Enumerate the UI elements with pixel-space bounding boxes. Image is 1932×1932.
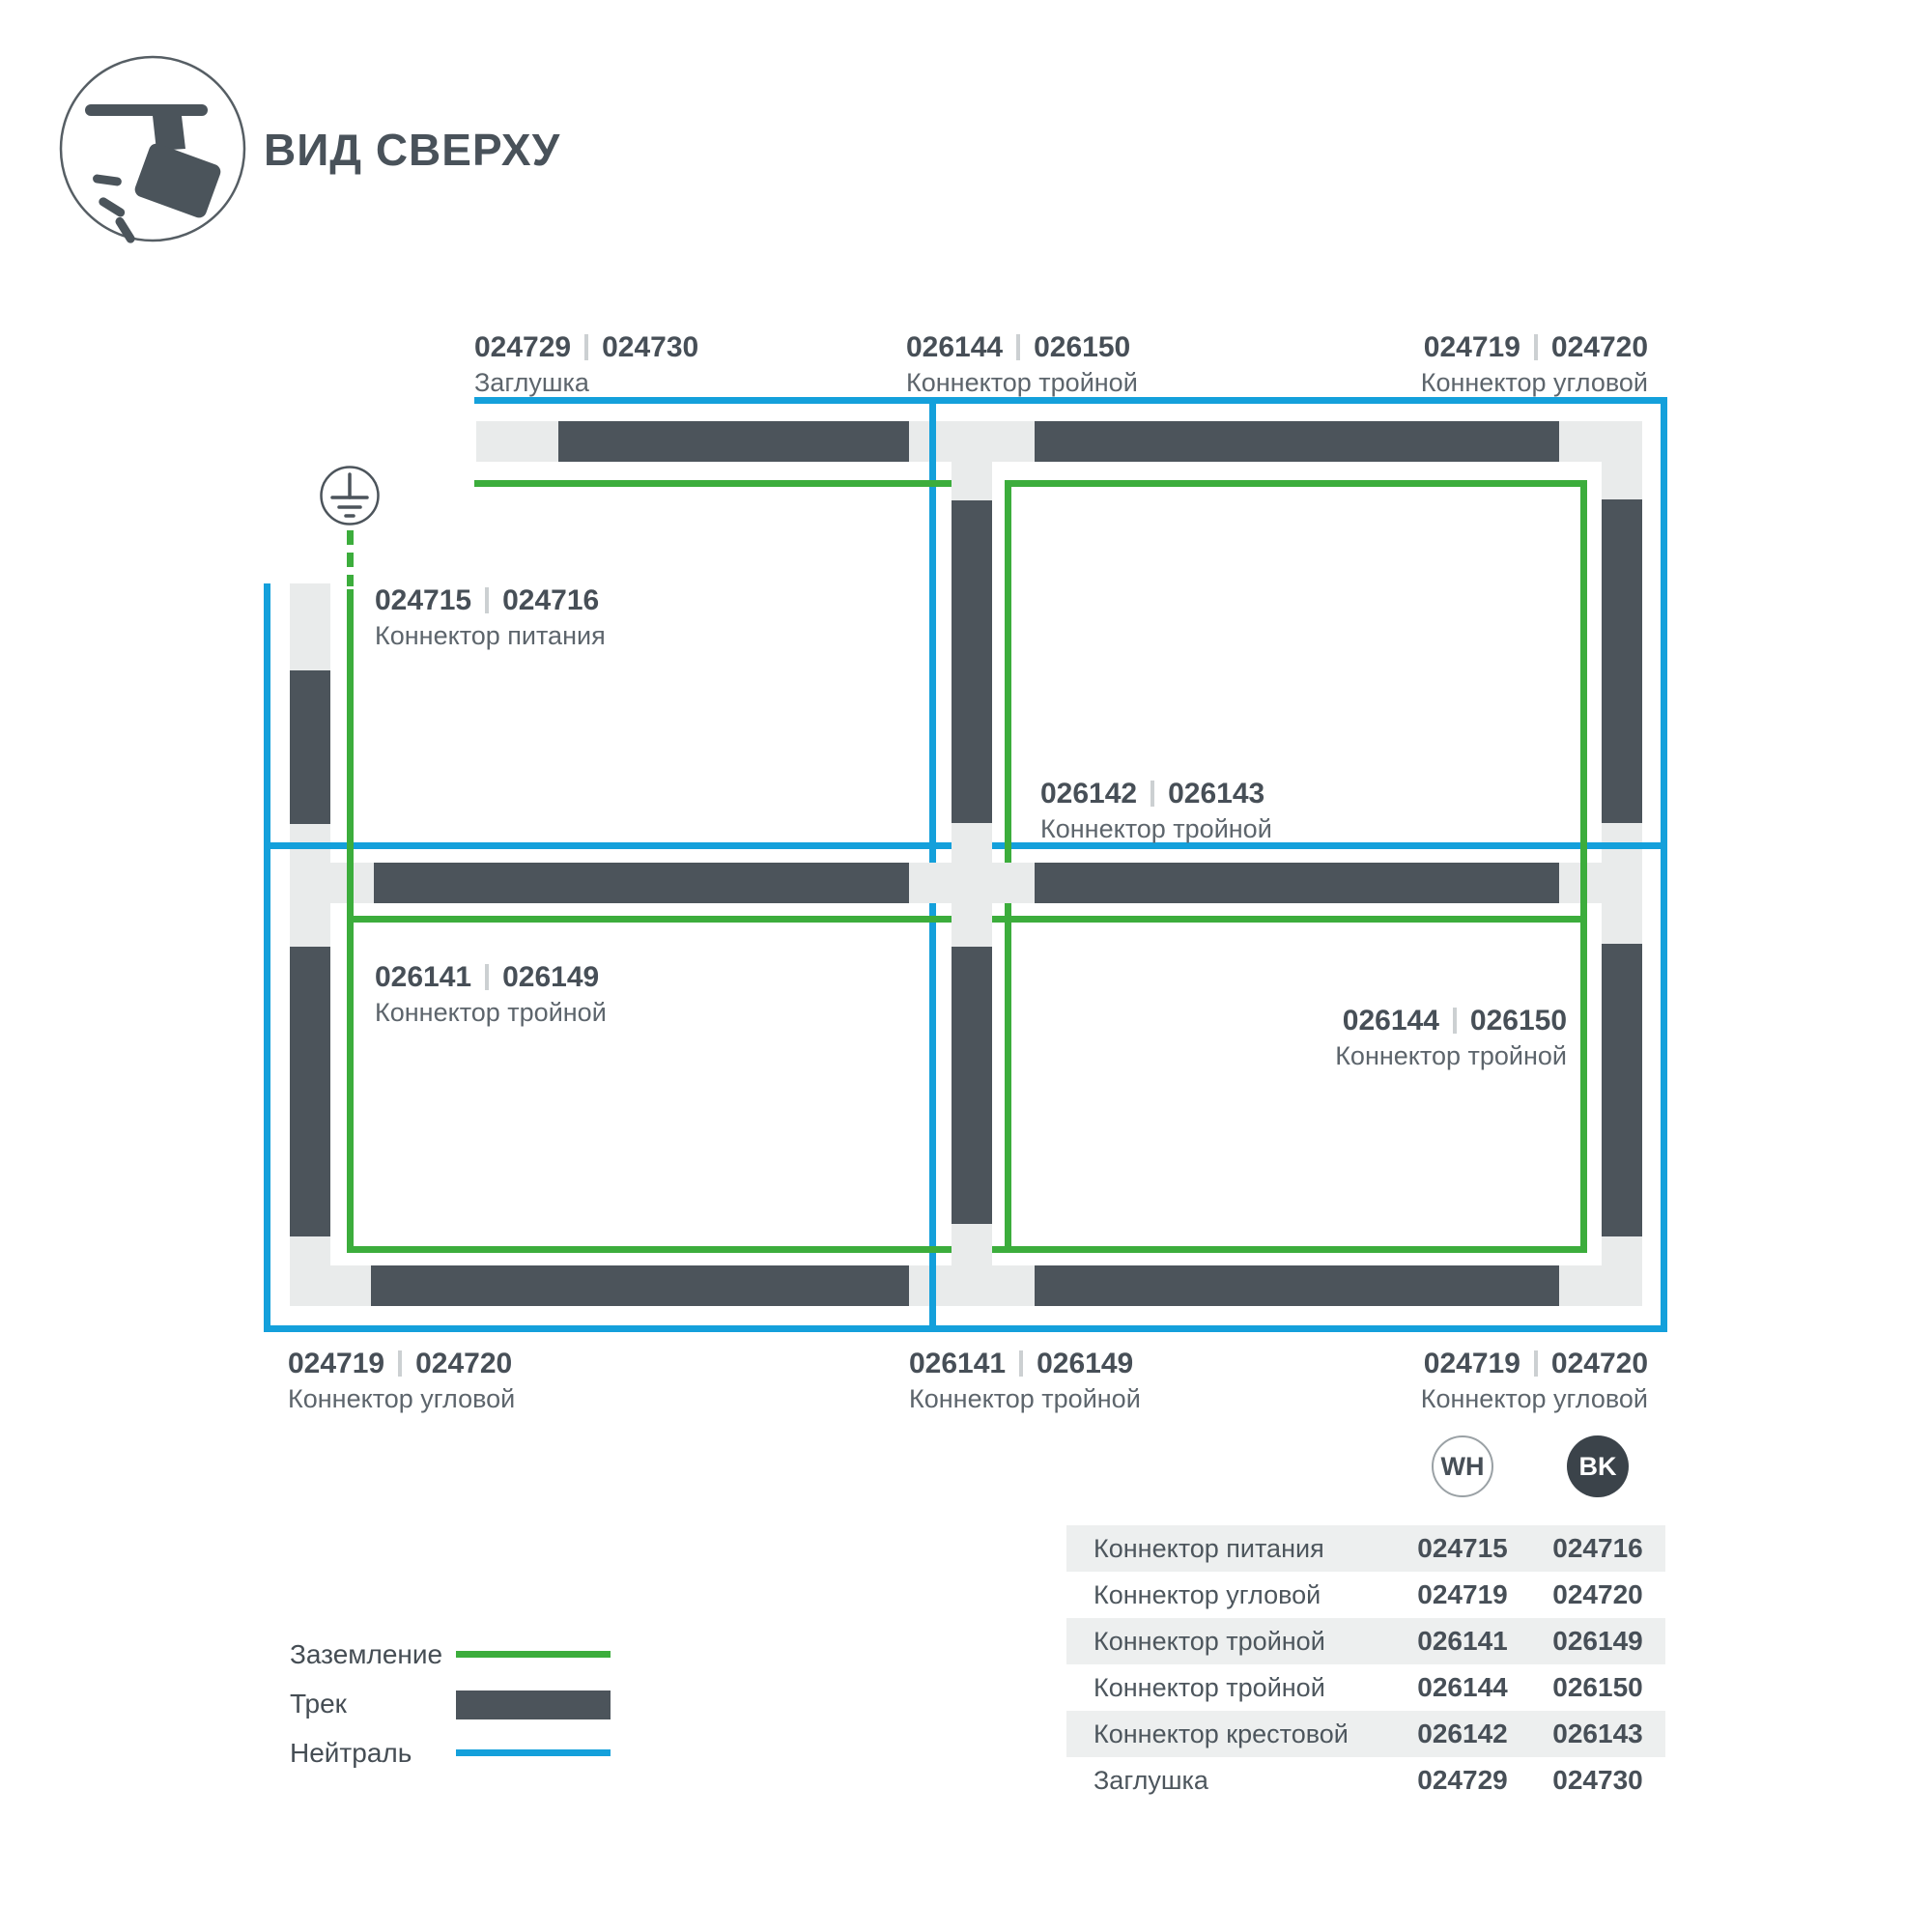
part-code-wh: 024715 <box>375 584 471 616</box>
part-code-bk: 024730 <box>602 331 698 363</box>
part-name-cell: Коннектор крестовой <box>1066 1719 1395 1749</box>
track-segment <box>290 947 330 1236</box>
bk-code-cell: 026143 <box>1530 1719 1665 1749</box>
ground-dashed-line <box>347 530 354 586</box>
table-row: Коннектор питания 024715 024716 <box>1066 1525 1665 1572</box>
part-name: Заглушка <box>474 368 698 397</box>
bk-code-cell: 024720 <box>1530 1579 1665 1610</box>
part-code-bk: 026150 <box>1034 331 1130 363</box>
part-name: Коннектор питания <box>375 621 606 650</box>
track-segment <box>371 1265 909 1306</box>
part-name: Коннектор угловой <box>1421 368 1648 397</box>
part-code-bk: 026149 <box>502 961 599 993</box>
part-name-cell: Коннектор угловой <box>1066 1580 1395 1610</box>
part-name-cell: Коннектор питания <box>1066 1534 1395 1564</box>
legend-swatch-neutral <box>456 1749 611 1756</box>
part-name: Коннектор тройной <box>909 1384 1141 1413</box>
bk-code-cell: 024730 <box>1530 1765 1665 1796</box>
bk-code-cell: 026150 <box>1530 1672 1665 1703</box>
separator <box>1534 1350 1538 1377</box>
part-code-bk: 026150 <box>1470 1005 1567 1037</box>
part-code-wh: 026141 <box>909 1348 1006 1379</box>
track-segment <box>1035 863 1559 903</box>
wh-code-cell: 024715 <box>1395 1533 1530 1564</box>
cross-connector-piece <box>909 863 1035 903</box>
part-label-center-cross: 026142026143 Коннектор тройной <box>1040 779 1272 843</box>
part-label-mid-right: 026144026150 Коннектор тройной <box>1335 1006 1567 1070</box>
part-label-bottom-right: 024719024720 Коннектор угловой <box>1421 1349 1648 1413</box>
wh-code-cell: 026142 <box>1395 1719 1530 1749</box>
separator <box>398 1350 402 1377</box>
part-label-bottom-center: 026141026149 Коннектор тройной <box>909 1349 1141 1413</box>
ground-line-top-left <box>474 480 952 487</box>
bk-code-cell: 026149 <box>1530 1626 1665 1657</box>
table-row: Коннектор тройной 026144 026150 <box>1066 1664 1665 1711</box>
part-name: Коннектор угловой <box>1421 1384 1648 1413</box>
separator <box>1016 334 1020 360</box>
part-code-bk: 024720 <box>415 1348 512 1379</box>
separator <box>1453 1008 1457 1034</box>
part-label-top-center: 026144026150 Коннектор тройной <box>906 332 1138 397</box>
neutral-line-right <box>1661 397 1667 1332</box>
ground-line-top-right <box>1005 480 1587 487</box>
legend-label-neutral: Нейтраль <box>290 1738 412 1769</box>
track-segment <box>290 670 330 824</box>
tee-connector-piece <box>952 1224 992 1265</box>
part-name: Коннектор тройной <box>375 998 607 1027</box>
part-code-bk: 024720 <box>1551 1348 1648 1379</box>
ground-symbol-icon <box>319 465 381 526</box>
part-name-cell: Заглушка <box>1066 1766 1395 1796</box>
track-segment <box>374 863 909 903</box>
separator <box>584 334 588 360</box>
part-name-cell: Коннектор тройной <box>1066 1673 1395 1703</box>
part-code-bk: 026149 <box>1037 1348 1133 1379</box>
page: ВИД СВЕРХУ <box>0 0 1932 1932</box>
neutral-line-bottom <box>264 1325 1667 1332</box>
separator <box>485 964 489 990</box>
wh-code-cell: 026141 <box>1395 1626 1530 1657</box>
part-code-wh: 026142 <box>1040 778 1137 810</box>
wh-code-cell: 026144 <box>1395 1672 1530 1703</box>
part-code-wh: 026141 <box>375 961 471 993</box>
part-code-bk: 026143 <box>1168 778 1264 810</box>
wh-code-cell: 024719 <box>1395 1579 1530 1610</box>
ground-line-left-vert <box>347 589 354 1253</box>
table-row: Коннектор тройной 026141 026149 <box>1066 1618 1665 1664</box>
track-segment <box>1602 499 1642 823</box>
track-segment <box>952 944 992 1224</box>
ground-line-right-vert <box>1580 480 1587 1253</box>
legend-swatch-track <box>456 1690 611 1719</box>
table-row: Заглушка 024729 024730 <box>1066 1757 1665 1804</box>
part-code-bk: 024720 <box>1551 331 1648 363</box>
track-segment <box>952 500 992 823</box>
separator <box>1019 1350 1023 1377</box>
part-label-top-left: 024729024730 Заглушка <box>474 332 698 397</box>
track-segment <box>1602 944 1642 1236</box>
track-segment <box>1035 421 1559 462</box>
part-code-wh: 024729 <box>474 331 571 363</box>
table-row: Коннектор крестовой 026142 026143 <box>1066 1711 1665 1757</box>
legend-swatch-ground <box>456 1651 611 1658</box>
part-name-cell: Коннектор тройной <box>1066 1627 1395 1657</box>
neutral-line-left <box>264 583 270 1332</box>
part-code-wh: 024719 <box>1424 331 1520 363</box>
part-name: Коннектор тройной <box>1335 1041 1567 1070</box>
track-segment <box>1035 1265 1559 1306</box>
separator <box>485 587 489 613</box>
separator <box>1151 781 1154 807</box>
part-code-wh: 026144 <box>1343 1005 1439 1037</box>
part-label-power-feed: 024715024716 Коннектор питания <box>375 585 606 650</box>
page-title: ВИД СВЕРХУ <box>264 124 560 176</box>
color-badge-black: BK <box>1567 1435 1629 1497</box>
parts-table: Коннектор питания 024715 024716 Коннекто… <box>1066 1525 1665 1804</box>
part-label-top-right: 024719024720 Коннектор угловой <box>1421 332 1648 397</box>
part-code-wh: 024719 <box>1424 1348 1520 1379</box>
wh-code-cell: 024729 <box>1395 1765 1530 1796</box>
part-code-wh: 024719 <box>288 1348 384 1379</box>
part-code-wh: 026144 <box>906 331 1003 363</box>
color-badge-white: WH <box>1432 1435 1493 1497</box>
legend-label-ground: Заземление <box>290 1639 442 1670</box>
part-label-bottom-left: 024719024720 Коннектор угловой <box>288 1349 515 1413</box>
part-name: Коннектор тройной <box>1040 814 1272 843</box>
part-name: Коннектор угловой <box>288 1384 515 1413</box>
neutral-line-top <box>474 397 1667 404</box>
part-name: Коннектор тройной <box>906 368 1138 397</box>
top-view-icon <box>58 54 247 243</box>
legend-label-track: Трек <box>290 1689 347 1719</box>
bk-code-cell: 024716 <box>1530 1533 1665 1564</box>
track-segment <box>558 421 909 462</box>
part-label-mid-left: 026141026149 Коннектор тройной <box>375 962 607 1027</box>
part-code-bk: 024716 <box>502 584 599 616</box>
separator <box>1534 334 1538 360</box>
table-row: Коннектор угловой 024719 024720 <box>1066 1572 1665 1618</box>
